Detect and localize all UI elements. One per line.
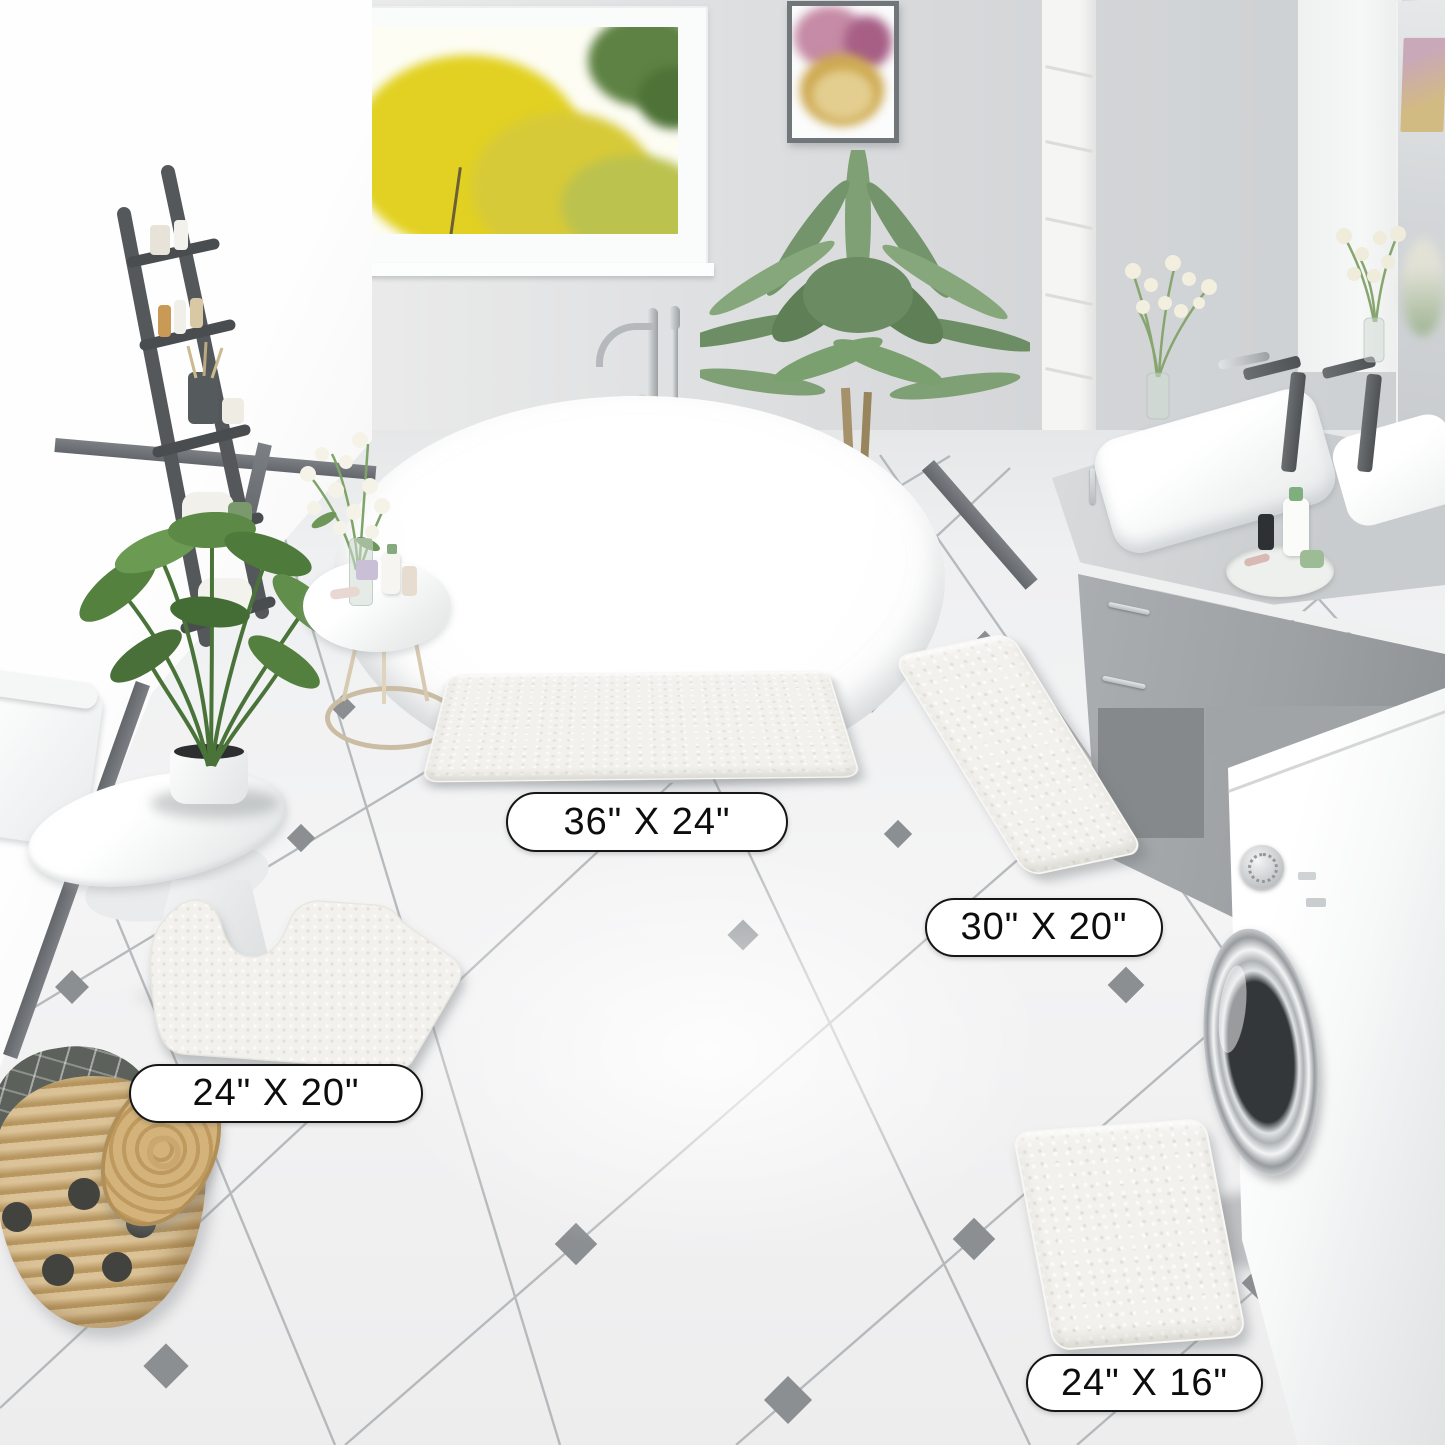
size-label-30x20: 30" X 20"	[925, 898, 1163, 957]
black-cosmetic-bottle	[1258, 514, 1274, 550]
table-jar	[402, 566, 417, 596]
lotion-bottle	[1283, 498, 1309, 556]
washer-dial-marks	[1248, 853, 1278, 883]
basket-dot	[42, 1254, 74, 1286]
bath-mat-36x24	[421, 671, 861, 783]
glass-vase	[1147, 373, 1169, 419]
size-label-36x24: 36" X 24"	[506, 792, 788, 852]
palm-fronds	[700, 150, 1030, 405]
table-bottle	[382, 552, 400, 594]
flower-stems	[1133, 265, 1209, 377]
lotion-pump	[1289, 487, 1303, 501]
vanity-door-handle	[1090, 468, 1095, 504]
bathroom-scene: 36" X 24" 30" X 20" 24" X 20" 24" X 16"	[0, 0, 1445, 1445]
green-jar	[1300, 550, 1324, 568]
table-bottle-pump	[387, 544, 397, 554]
glass-vase	[1364, 318, 1384, 362]
tub-hand-shower-head	[669, 306, 680, 330]
table-lavender-box	[356, 560, 378, 580]
washer-display	[1298, 872, 1316, 880]
contour-mat-shape	[151, 900, 461, 1069]
basket-dot	[102, 1252, 132, 1282]
flower-blooms	[1336, 226, 1406, 283]
size-label-24x20: 24" X 20"	[129, 1064, 423, 1123]
contour-mat-24x20	[0, 880, 520, 1180]
mirror-flower-vase	[1318, 218, 1428, 368]
size-label-24x16: 24" X 16"	[1026, 1354, 1263, 1412]
vanity-flower-vase	[1115, 245, 1245, 425]
basket-dot	[2, 1202, 32, 1232]
washer-dial	[1240, 845, 1284, 889]
washer-button	[1306, 898, 1326, 907]
washer-door-glass-highlight	[1214, 964, 1251, 1055]
basket-dot	[68, 1178, 100, 1210]
bath-mat-24x16	[1012, 1118, 1247, 1351]
